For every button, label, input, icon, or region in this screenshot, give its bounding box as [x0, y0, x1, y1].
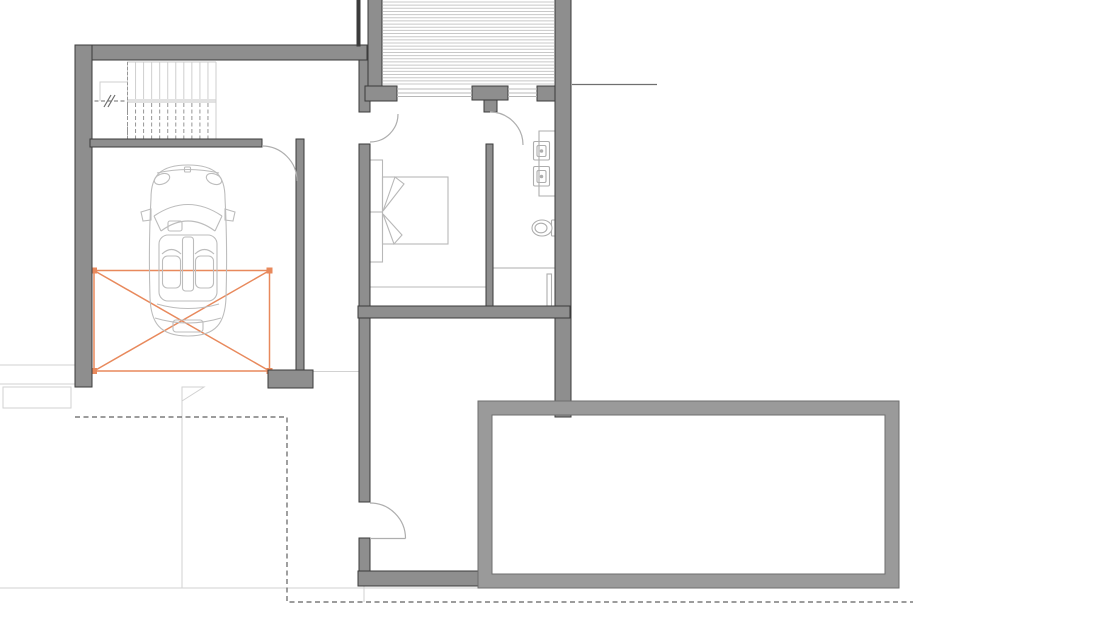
door-arc-hall — [370, 503, 406, 539]
boundary-flag-marker — [182, 387, 204, 401]
door-arc-bedroom — [370, 114, 398, 142]
wall-bedroom-top-pillar — [484, 100, 497, 112]
car-center-console — [183, 237, 194, 291]
door-arc-bathroom — [490, 112, 523, 145]
bathroom-fixtures — [493, 131, 562, 306]
site-lines — [0, 365, 478, 602]
window-1 — [397, 89, 472, 97]
site-rectangle — [3, 387, 71, 408]
car-seat-left — [163, 256, 181, 288]
car-seat-right — [196, 256, 214, 288]
bedroom-furniture — [370, 160, 487, 287]
windows — [397, 89, 537, 97]
bed-pillow-lower — [383, 214, 402, 244]
stair-lower-flight — [128, 103, 217, 139]
car-windshield — [154, 205, 222, 232]
wall-bedroom-bottom — [358, 306, 570, 318]
door-arc-garage — [262, 146, 297, 181]
wall-bedroom-top-left — [365, 86, 397, 101]
bed-pillow-upper — [383, 177, 404, 211]
ramp-hatch — [383, 2, 554, 84]
car-mirror-left — [141, 209, 151, 221]
wall-bedroom-top-mid — [472, 86, 508, 100]
parking-marker — [91, 268, 273, 375]
car-body — [149, 165, 226, 336]
basin-1-drain — [540, 150, 542, 152]
car-headlight-right — [205, 171, 224, 186]
bed-headboard — [370, 160, 383, 262]
car-seat-right-back — [195, 250, 214, 255]
floor-plan-canvas — [0, 0, 1110, 626]
staircase — [88, 62, 216, 139]
wall-stair-room — [90, 139, 262, 147]
wall-corridor-main — [359, 144, 370, 502]
shower-screen — [547, 274, 552, 306]
wall-right-column — [555, 0, 571, 417]
wall-bed-bath-divider — [486, 144, 493, 306]
car-seat-left-back — [162, 250, 181, 255]
wall-ramp-left — [368, 0, 382, 88]
stair-landing-band — [127, 99, 216, 103]
bed-mattress — [383, 177, 449, 244]
wall-left-outer — [75, 45, 92, 387]
basin-2-drain — [540, 175, 542, 177]
car-mirror-right — [225, 209, 235, 221]
car-icon — [141, 165, 235, 336]
wall-garage-right — [296, 139, 304, 371]
wall-garage-door-block — [268, 370, 313, 388]
toilet-bowl-inner — [535, 223, 547, 233]
car-headlight-left — [153, 171, 172, 186]
wall-top-edge-stub — [357, 0, 360, 46]
window-2 — [508, 89, 537, 97]
pool-structure — [478, 401, 899, 588]
wall-hall-bottom — [358, 571, 478, 586]
wall-bedroom-top-right — [537, 86, 556, 101]
wall-top-outer — [75, 45, 367, 60]
stair-upper-flight — [128, 62, 217, 99]
